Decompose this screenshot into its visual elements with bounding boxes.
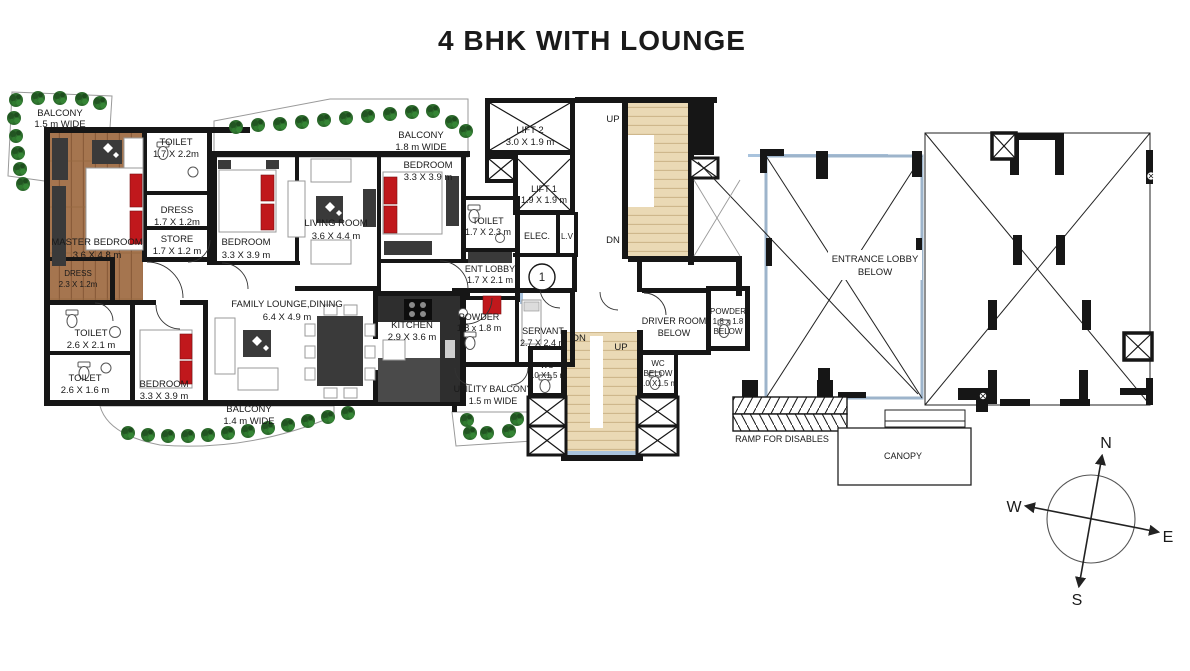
label-living-room: LIVING ROOM — [304, 218, 367, 229]
svg-text:1.9 X 1.9 m: 1.9 X 1.9 m — [521, 195, 567, 205]
label-balcony-top: BALCONY — [398, 130, 444, 141]
svg-text:3.3 X 3.9 m: 3.3 X 3.9 m — [140, 391, 189, 402]
svg-text:BELOW: BELOW — [714, 327, 743, 336]
label-toilet-3: TOILET — [472, 216, 504, 226]
label-wc: WC — [540, 361, 554, 370]
svg-text:1.8 m WIDE: 1.8 m WIDE — [395, 142, 446, 153]
svg-text:1.8 x 1.8 m: 1.8 x 1.8 m — [457, 323, 502, 333]
svg-text:2.9 X 3.6 m: 2.9 X 3.6 m — [388, 332, 437, 343]
svg-text:2.6 X 1.6 m: 2.6 X 1.6 m — [61, 385, 110, 396]
svg-text:BELOW: BELOW — [644, 369, 673, 378]
svg-text:1.7 X 2.1 m: 1.7 X 2.1 m — [467, 275, 513, 285]
svg-text:1.0 X1.5 m: 1.0 X1.5 m — [528, 371, 567, 380]
label-entrance-lobby: ENTRANCE LOBBY — [832, 254, 919, 265]
svg-text:2.6 X 2.1 m: 2.6 X 2.1 m — [67, 340, 116, 351]
duct-shaft-se — [1124, 333, 1152, 360]
label-wc-below: WC — [651, 359, 665, 368]
label-dn-main: DN — [606, 235, 620, 246]
staircase-main — [628, 103, 688, 256]
compass-rose: N S W E — [1006, 435, 1173, 609]
label-family-lounge: FAMILY LOUNGE,DINING — [231, 299, 343, 310]
open-area-east — [925, 133, 1155, 406]
label-kitchen: KITCHEN — [391, 320, 433, 331]
page-title: 4 BHK WITH LOUNGE — [438, 25, 746, 56]
label-bedroom-4: BEDROOM — [139, 379, 188, 390]
label-servant: SERVANT — [522, 326, 564, 336]
label-lv: L.V — [561, 232, 574, 241]
label-ramp: RAMP FOR DISABLES — [735, 434, 829, 444]
svg-text:3.6 X 4.4 m: 3.6 X 4.4 m — [312, 231, 361, 242]
svg-text:1.8 x 1.8: 1.8 x 1.8 — [713, 317, 744, 326]
duct-shaft-ne — [992, 133, 1016, 159]
label-toilet-1: TOILET — [74, 328, 107, 339]
label-utility-balcony: UTILITY BALCONY — [454, 384, 533, 394]
label-driver-room: DRIVER ROOM — [642, 316, 707, 326]
svg-text:BELOW: BELOW — [858, 267, 892, 278]
svg-text:1.5 m WIDE: 1.5 m WIDE — [34, 119, 85, 130]
svg-text:1.5 m WIDE: 1.5 m WIDE — [469, 396, 518, 406]
compass-east-label: E — [1163, 529, 1174, 546]
label-lift-2: LIFT 2 — [516, 125, 543, 136]
compass-south-label: S — [1072, 592, 1083, 609]
compass-north-label: N — [1100, 435, 1112, 452]
svg-text:2.7 X 2.4 m: 2.7 X 2.4 m — [520, 338, 566, 348]
svg-text:3.6 X 4.8 m: 3.6 X 4.8 m — [73, 250, 122, 261]
label-master-bedroom: MASTER BEDROOM — [51, 237, 142, 248]
label-dress-2: DRESS — [64, 269, 92, 278]
label-store: STORE — [161, 234, 194, 245]
label-ent-lobby: ENT LOBBY — [465, 264, 515, 274]
label-bedroom-3: BEDROOM — [403, 160, 452, 171]
svg-text:1.0 X1.5 m: 1.0 X1.5 m — [639, 379, 678, 388]
label-balcony-bottom: BALCONY — [226, 404, 272, 415]
duct-shaft-small — [489, 159, 513, 179]
stair-direction-labels: UP DN DN UP — [572, 114, 627, 353]
label-powder-below: POWDER — [710, 307, 746, 316]
svg-text:3.3 X 3.9 m: 3.3 X 3.9 m — [404, 172, 453, 183]
label-bedroom-2: BEDROOM — [221, 237, 270, 248]
label-lift-1: LIFT 1 — [531, 184, 557, 194]
balcony-bottom — [100, 406, 334, 446]
label-toilet-2: TOILET — [68, 373, 101, 384]
floor-plan-drawing: 4 BHK WITH LOUNGE — [0, 0, 1190, 671]
label-canopy: CANOPY — [884, 451, 922, 461]
label-balcony-tl: BALCONY — [37, 108, 83, 119]
svg-text:3.0 X 1.9 m: 3.0 X 1.9 m — [506, 137, 555, 148]
svg-text:1.4 m WIDE: 1.4 m WIDE — [223, 416, 274, 427]
label-toilet-master: TOILET — [159, 137, 192, 148]
label-up-main: UP — [606, 114, 619, 125]
svg-text:1.7 X 2.2m: 1.7 X 2.2m — [153, 149, 199, 160]
label-dress-1: DRESS — [161, 205, 194, 216]
duct-shafts-wc-right — [637, 397, 678, 455]
duct-shafts-wc-left — [528, 397, 566, 455]
unit-number: 1 — [539, 272, 545, 284]
floor-plan-page: 4 BHK WITH LOUNGE — [0, 0, 1190, 671]
label-powder: POWDER — [459, 312, 500, 322]
unit-number-badge: 1 — [529, 264, 555, 290]
svg-text:2.3 X 1.2m: 2.3 X 1.2m — [59, 280, 98, 289]
svg-text:3.3 X 3.9 m: 3.3 X 3.9 m — [222, 250, 271, 261]
svg-text:1.7 X 2.3 m: 1.7 X 2.3 m — [465, 227, 511, 237]
svg-text:1.7 X 1.2 m: 1.7 X 1.2 m — [153, 246, 202, 257]
svg-text:6.4 X 4.9 m: 6.4 X 4.9 m — [263, 312, 312, 323]
svg-text:1.7 X 1.2m: 1.7 X 1.2m — [154, 217, 200, 228]
label-elec: ELEC. — [524, 231, 550, 241]
label-dn-service: DN — [572, 333, 586, 344]
label-up-service: UP — [614, 342, 627, 353]
compass-west-label: W — [1006, 499, 1022, 516]
svg-text:BELOW: BELOW — [658, 328, 691, 338]
